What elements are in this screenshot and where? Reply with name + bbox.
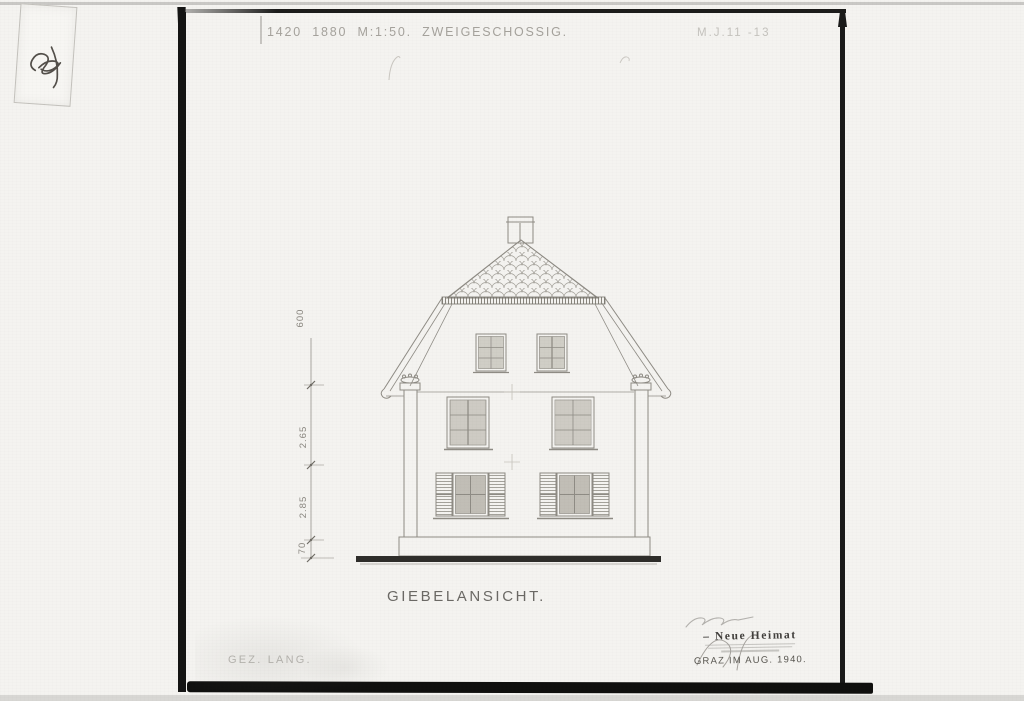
stamp-fineprint-line — [721, 649, 779, 652]
chimney — [506, 217, 535, 243]
attic-window-left — [473, 334, 509, 373]
dim-label-plinth: 70 — [297, 542, 308, 555]
stamp-fineprint-line — [708, 646, 792, 649]
dimension-line: 600 2.65 2.85 70 — [295, 309, 334, 562]
scanned-architectural-drawing: 1420 1880 M:1:50. ZWEIGESCHOSSIG. M.J.11… — [0, 0, 1024, 701]
stamp-place-date: GRAZ IM AUG. 1940. — [686, 653, 814, 666]
pencil-marks — [389, 57, 629, 81]
pilaster-left — [400, 374, 420, 537]
dim-label-ground: 2.85 — [298, 496, 309, 519]
eaves-scroll-right — [661, 389, 671, 398]
roof — [381, 240, 671, 398]
ground-window-left — [433, 473, 509, 519]
drawn-by-note: GEZ. LANG. — [228, 654, 312, 666]
office-stamp: – Neue Heimat GRAZ IM AUG. 1940. — [685, 603, 814, 675]
upper-window-left — [444, 397, 493, 450]
plinth — [399, 537, 650, 556]
stamp-company-name: – Neue Heimat — [686, 629, 814, 643]
ground-window-right — [537, 473, 613, 519]
eaves-scroll-left — [381, 389, 391, 398]
drawing-caption: GIEBELANSICHT. — [387, 588, 546, 605]
ground-line — [356, 556, 661, 564]
dim-label-upper: 2.65 — [298, 426, 309, 449]
dim-label-roof: 600 — [295, 309, 306, 328]
registration-crosses — [504, 384, 520, 470]
upper-window-right — [549, 397, 598, 450]
attic-window-right — [534, 334, 570, 373]
pilaster-right — [631, 374, 651, 537]
roof-fascia-band — [442, 297, 605, 304]
